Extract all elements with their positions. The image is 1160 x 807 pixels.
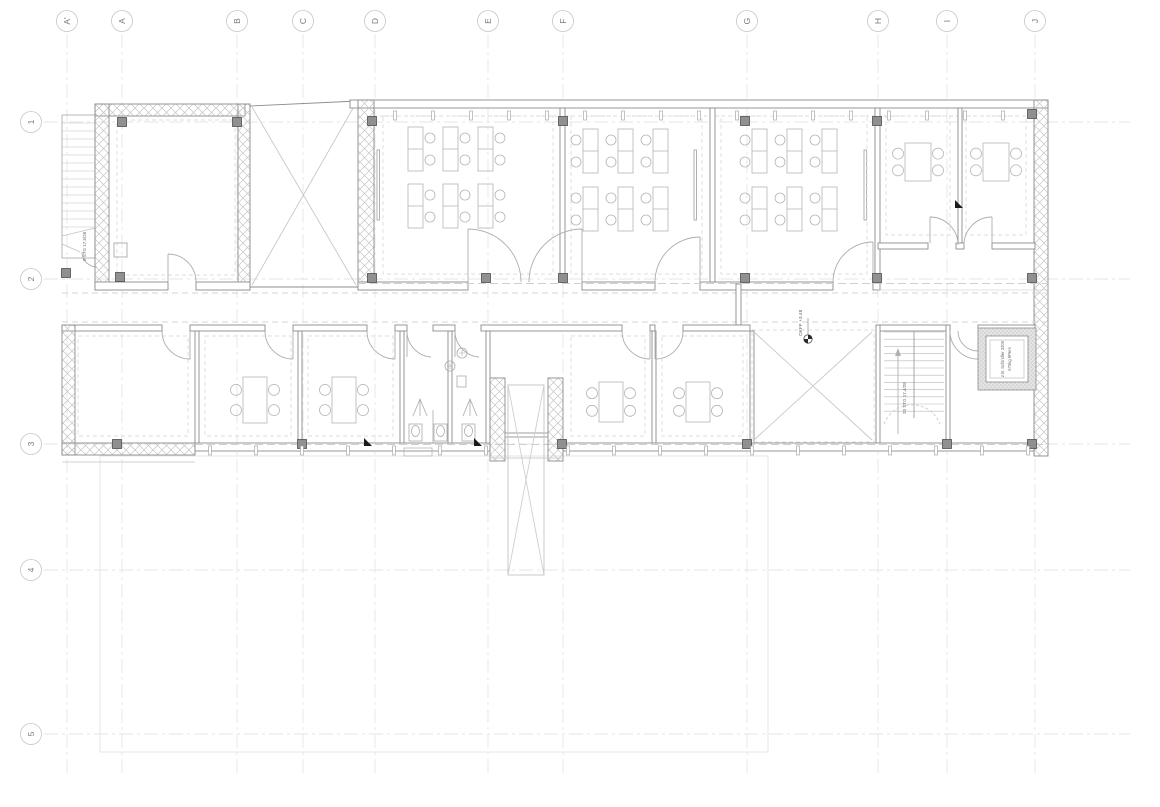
window-tick	[981, 446, 984, 455]
chair-icon	[495, 190, 505, 200]
window-tick	[843, 446, 846, 455]
window-tick	[1027, 446, 1030, 455]
window-tick	[584, 111, 587, 120]
column	[233, 118, 242, 127]
column	[559, 274, 568, 283]
grid-label: 1	[26, 119, 36, 124]
room-upper-left	[95, 104, 250, 290]
chair-icon	[571, 157, 581, 167]
desk-group	[443, 127, 470, 171]
chair-icon	[587, 388, 598, 399]
building-walls	[62, 100, 1049, 752]
chair-icon	[893, 148, 904, 159]
chair-icon	[320, 384, 331, 395]
chair-icon	[571, 215, 581, 225]
column	[1028, 274, 1037, 283]
desk-group	[641, 187, 668, 231]
desk-group	[740, 187, 767, 231]
window-tick	[659, 446, 662, 455]
chair-icon	[740, 193, 750, 203]
desk-group	[571, 129, 598, 173]
window-tick	[546, 111, 549, 120]
window-tick	[470, 111, 473, 120]
grid-label: 5	[26, 731, 36, 736]
chair-icon	[460, 155, 470, 165]
chair-icon	[1011, 165, 1022, 176]
annotation-main-stair: 20 STG 17,4/28	[902, 382, 907, 414]
meeting-table	[587, 382, 636, 422]
column	[368, 274, 377, 283]
chair-icon	[810, 193, 820, 203]
column	[559, 117, 568, 126]
chair-icon	[495, 133, 505, 143]
grid-layer: A'ABCDEFGHIJ12345	[21, 11, 1131, 776]
chair-icon	[231, 384, 242, 395]
chair-icon	[231, 405, 242, 416]
chair-icon	[495, 155, 505, 165]
window-tick	[889, 446, 892, 455]
window-tick	[705, 446, 708, 455]
desk-group	[775, 187, 802, 231]
chair-icon	[587, 405, 598, 416]
window-tick	[736, 111, 739, 120]
lower-doors	[162, 331, 978, 359]
column	[743, 440, 752, 449]
chair-icon	[775, 135, 785, 145]
chair-icon	[460, 190, 470, 200]
desk-group	[408, 184, 435, 228]
annotation-level: OKFF +3.48	[798, 309, 804, 336]
column	[873, 274, 882, 283]
chair-icon	[740, 215, 750, 225]
window-tick	[255, 446, 258, 455]
window-tick	[567, 446, 570, 455]
window-tick	[622, 111, 625, 120]
column	[113, 440, 122, 449]
annotation-elevator-1: z.B. Schindler 3300	[1000, 340, 1005, 377]
chair-icon	[425, 212, 435, 222]
chair-icon	[712, 405, 723, 416]
chair-icon	[712, 388, 723, 399]
chair-icon	[933, 148, 944, 159]
chair-icon	[320, 405, 331, 416]
desk-group	[606, 187, 633, 231]
desk-group	[443, 184, 470, 228]
lower-floor-outline	[100, 456, 768, 752]
chair-icon	[933, 165, 944, 176]
window-tick	[1002, 111, 1005, 120]
desk-group	[478, 127, 505, 171]
window-tick	[432, 111, 435, 120]
window-tick	[964, 111, 967, 120]
window-tick	[394, 111, 397, 120]
window-tick	[660, 111, 663, 120]
column	[118, 118, 127, 127]
chair-icon	[625, 405, 636, 416]
chair-icon	[893, 165, 904, 176]
column	[741, 274, 750, 283]
chair-icon	[269, 405, 280, 416]
chair-icon	[571, 135, 581, 145]
desk-group	[641, 129, 668, 173]
chair-icon	[495, 212, 505, 222]
desk-group	[810, 187, 837, 231]
grid-label: C	[298, 18, 308, 24]
window-tick	[613, 446, 616, 455]
meeting-table	[231, 377, 280, 423]
column	[368, 117, 377, 126]
chair-icon	[740, 135, 750, 145]
window-tick	[850, 111, 853, 120]
window-tick	[347, 446, 350, 455]
chair-icon	[460, 133, 470, 143]
window-tick	[393, 446, 396, 455]
urinal-icon	[457, 376, 466, 387]
annotation-escape-stair: 8 STG 17,5/26	[82, 231, 87, 261]
chair-icon	[425, 133, 435, 143]
sill-markers	[364, 200, 963, 446]
meeting-table	[971, 143, 1022, 181]
grid-label: J	[1030, 19, 1040, 23]
desk-group	[606, 129, 633, 173]
chair-icon	[775, 193, 785, 203]
desk-group	[740, 129, 767, 173]
grid-label: F	[558, 18, 568, 23]
chair-icon	[358, 405, 369, 416]
chair-icon	[641, 135, 651, 145]
column	[62, 269, 71, 278]
column	[482, 274, 491, 283]
window-tick	[935, 446, 938, 455]
column	[1028, 110, 1037, 119]
window-tick	[439, 446, 442, 455]
upper-doors	[468, 217, 992, 282]
grid-label: A'	[62, 17, 72, 25]
column	[873, 117, 882, 126]
window-tick	[797, 446, 800, 455]
grid-label: D	[370, 18, 380, 24]
chair-icon	[775, 215, 785, 225]
chair-icon	[1011, 148, 1022, 159]
chair-icon	[606, 157, 616, 167]
main-entrance	[490, 378, 563, 575]
grid-label: 4	[26, 567, 36, 572]
chair-icon	[740, 157, 750, 167]
desk-group	[810, 129, 837, 173]
chair-icon	[810, 135, 820, 145]
window-tick	[301, 446, 304, 455]
meeting-table	[893, 143, 944, 181]
desk-group	[775, 129, 802, 173]
chair-icon	[425, 155, 435, 165]
chair-icon	[358, 384, 369, 395]
chair-icon	[641, 157, 651, 167]
desk-group	[478, 184, 505, 228]
window-tick	[209, 446, 212, 455]
elevator	[958, 328, 1036, 390]
meeting-table	[320, 377, 369, 423]
door-arc	[168, 254, 196, 282]
chair-icon	[625, 388, 636, 399]
meeting-table	[674, 382, 723, 422]
floor-plan-canvas: A'ABCDEFGHIJ12345	[0, 0, 1160, 807]
chair-icon	[460, 212, 470, 222]
window-tick	[698, 111, 701, 120]
chair-icon	[641, 193, 651, 203]
column	[943, 440, 952, 449]
window-tick	[926, 111, 929, 120]
chair-icon	[641, 215, 651, 225]
grid-label: H	[873, 18, 883, 24]
column	[116, 273, 125, 282]
grid-label: G	[742, 18, 752, 25]
column	[741, 117, 750, 126]
window-tick	[888, 111, 891, 120]
floor-plan-drawing: A'ABCDEFGHIJ12345	[0, 0, 1160, 807]
furniture-layer	[231, 127, 1022, 423]
wc-area	[404, 348, 477, 456]
chair-icon	[606, 193, 616, 203]
chair-icon	[269, 384, 280, 395]
grid-label: 3	[26, 441, 36, 446]
grid-label: B	[232, 18, 242, 24]
desk-group	[571, 187, 598, 231]
annotation-layer: 8 STG 17,5/26 20 STG 17,4/28 OKFF +3.48 …	[82, 231, 1012, 414]
void-x	[752, 330, 874, 442]
window-tick	[774, 111, 777, 120]
chair-icon	[971, 148, 982, 159]
window-tick	[751, 446, 754, 455]
window-tick	[812, 111, 815, 120]
chair-icon	[425, 190, 435, 200]
desk-group	[408, 127, 435, 171]
chair-icon	[775, 157, 785, 167]
chair-icon	[606, 135, 616, 145]
main-stair	[884, 332, 944, 434]
chair-icon	[810, 157, 820, 167]
chair-icon	[571, 193, 581, 203]
chair-icon	[971, 165, 982, 176]
grid-label: E	[483, 18, 493, 24]
chair-icon	[810, 215, 820, 225]
chair-icon	[674, 405, 685, 416]
column	[558, 440, 567, 449]
window-tick	[508, 111, 511, 120]
grid-label: I	[942, 20, 952, 22]
connector-void	[250, 101, 358, 287]
chair-icon	[606, 215, 616, 225]
chair-icon	[674, 388, 685, 399]
grid-label: A	[117, 18, 127, 24]
grid-label: 2	[26, 276, 36, 281]
window-tick	[485, 446, 488, 455]
annotation-elevator-2: 675kg 9Pers	[1007, 347, 1012, 371]
